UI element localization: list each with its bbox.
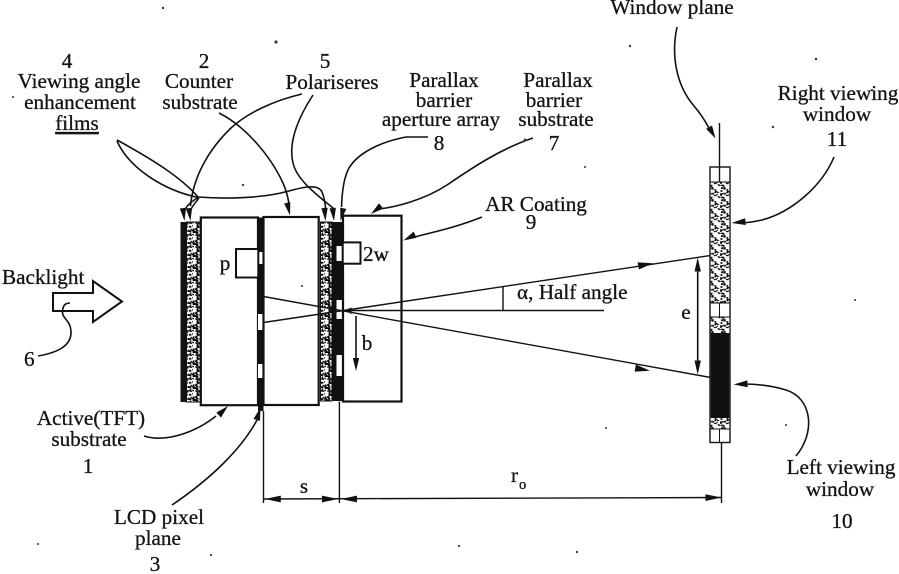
svg-text:substrate: substrate	[51, 427, 126, 451]
svg-text:films: films	[55, 111, 99, 135]
svg-text:Polariseres: Polariseres	[286, 70, 379, 94]
svg-text:r: r	[511, 463, 518, 487]
svg-text:7: 7	[549, 131, 560, 155]
svg-text:plane: plane	[135, 526, 181, 550]
svg-text:9: 9	[526, 210, 537, 234]
svg-text:8: 8	[434, 131, 445, 155]
svg-text:Backlight: Backlight	[2, 265, 84, 289]
svg-text:s: s	[300, 474, 308, 498]
svg-text:substrate: substrate	[162, 90, 237, 114]
svg-text:window: window	[803, 102, 872, 126]
svg-text:b: b	[362, 331, 373, 355]
svg-text:1: 1	[83, 454, 94, 478]
svg-text:aperture array: aperture array	[382, 107, 501, 131]
svg-text:α, Half angle: α, Half angle	[517, 280, 628, 304]
svg-text:e: e	[681, 300, 690, 324]
svg-text:6: 6	[24, 347, 35, 371]
svg-text:substrate: substrate	[518, 107, 593, 131]
svg-text:3: 3	[150, 552, 161, 574]
svg-text:2w: 2w	[363, 242, 390, 266]
svg-text:11: 11	[827, 127, 847, 151]
svg-text:Left viewing: Left viewing	[787, 455, 896, 479]
svg-text:Window plane: Window plane	[610, 0, 733, 19]
svg-text:window: window	[806, 477, 875, 501]
svg-text:10: 10	[831, 509, 852, 533]
svg-text:o: o	[519, 477, 526, 493]
svg-text:p: p	[220, 251, 231, 275]
